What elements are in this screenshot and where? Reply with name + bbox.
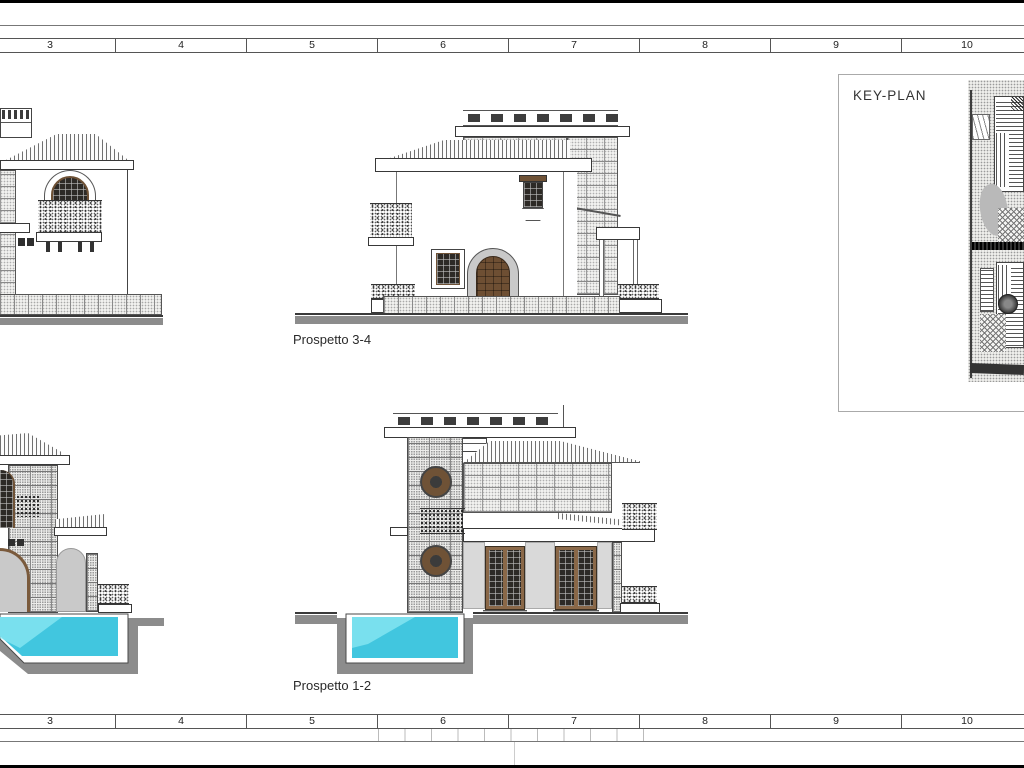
p12-pilaster-a (463, 542, 485, 609)
door-a-leaf-right (507, 550, 521, 606)
keyplan-hedge-band (972, 242, 1024, 250)
p12-left-pool (0, 608, 165, 690)
p34-wing-cornice (596, 227, 640, 240)
p12-main-roof (463, 441, 640, 463)
keyplan-road-band (970, 363, 1024, 375)
p12-label: Prospetto 1-2 (293, 678, 371, 693)
ruler-cell: 9 (770, 38, 902, 53)
p12-french-door-a (485, 546, 525, 610)
p34-left-ground-line (0, 315, 163, 317)
p12-left-ironwork (16, 495, 40, 517)
p34-upper-window (523, 182, 543, 208)
ruler-cell: 5 (246, 714, 378, 729)
ruler-cell: 6 (377, 38, 509, 53)
ruler-bottom: 345678910 (0, 714, 1024, 729)
p34-balcony-bracket-right (78, 242, 96, 252)
p34-left-side-slab (0, 223, 30, 233)
p12-floor1-cornice (463, 528, 655, 542)
ruler-cell: 4 (115, 38, 247, 53)
p34-main-roof (390, 140, 570, 158)
door-b-leaf-left (559, 550, 574, 606)
door-b-leaf-right (578, 550, 593, 606)
p34-balcony-bracket-left (46, 242, 64, 252)
p12-left-arch-window (0, 470, 15, 528)
p34-balcony-railing (38, 200, 102, 234)
ruler-subdivision-ticks (378, 729, 645, 741)
p12-left-eave (390, 527, 408, 536)
p34-left-vent-b (27, 238, 34, 246)
p34-label: Prospetto 3-4 (293, 332, 371, 347)
ruler-cell: 8 (639, 38, 771, 53)
p12-ground-line-right (473, 612, 688, 614)
p12-left-niche (56, 548, 86, 612)
ruler-cell: 7 (508, 38, 640, 53)
ruler-cell: 4 (115, 714, 247, 729)
p34-ground-bar (295, 316, 688, 324)
ruler-cell: 8 (639, 714, 771, 729)
p34-left-quoins (0, 170, 16, 296)
ruler-cell: 9 (770, 714, 902, 729)
ruler-cell: 10 (901, 38, 1024, 53)
p34-merlon-parapet (463, 110, 618, 126)
frame-hline-lower (0, 741, 1024, 742)
p12-left-wing-cornice (54, 527, 107, 536)
p34-left-vent-a (18, 238, 25, 246)
p34-upper-window-lintel (519, 175, 547, 182)
p34-left-roof (2, 134, 132, 162)
ruler-cell: 10 (901, 714, 1024, 729)
ruler-cell: 3 (0, 38, 116, 53)
p34-pilaster-right (563, 172, 577, 297)
p12-left-vent-a (8, 539, 15, 546)
p34-lower-window (436, 253, 460, 285)
p12-floor2-stone (463, 463, 612, 513)
p34-balcony-slab (36, 232, 102, 242)
p12-left-railing (98, 584, 129, 604)
keyplan-terrace-a (998, 208, 1024, 242)
p34-tower-cornice (455, 126, 630, 137)
keyplan-terrace-b (980, 314, 1006, 352)
p12-left-cornice (0, 455, 70, 465)
p12-pilaster-b (525, 542, 555, 609)
keyplan-side-rooms (980, 268, 994, 312)
ruler-cell: 6 (377, 714, 509, 729)
chimney-cap-line (1, 122, 31, 123)
chimney-ornament (2, 110, 30, 119)
p12-upper-right-railing (622, 503, 657, 530)
door-a-leaf-left (489, 550, 503, 606)
p34-left-chimney (0, 108, 32, 138)
keyplan-site-plan (968, 80, 1024, 382)
p12-left-roof (0, 433, 62, 457)
p12-left-pier (86, 553, 98, 612)
p34-left-terrace-slab (368, 237, 414, 246)
p12-porthole-lower (420, 545, 452, 577)
p12-tower-balcony (420, 508, 465, 534)
p34-left-base-course (0, 294, 162, 315)
p12-french-door-b (555, 546, 597, 610)
p34-wing-base (616, 299, 662, 313)
house-a-floor-hatch-1 (996, 133, 1008, 187)
ruler-top: 345678910 (0, 38, 1024, 53)
frame-vline-center (514, 742, 515, 765)
keyplan-title: KEY-PLAN (853, 88, 927, 103)
house-a-shadow-corner (1011, 97, 1023, 111)
ruler-cell: 5 (246, 38, 378, 53)
p34-left-terrace-railing (370, 203, 412, 238)
p12-pilaster-c (597, 542, 612, 609)
p34-wing-railing (618, 284, 659, 299)
p12-left-vent-b (17, 539, 24, 546)
p12-left-wing-roof (55, 514, 105, 527)
keyplan-house-a (994, 96, 1024, 192)
keyplan-tree-circle (998, 294, 1018, 314)
p12-ground-railing (622, 586, 657, 603)
p34-ground-line (295, 313, 688, 315)
ruler-cell: 3 (0, 714, 116, 729)
sheet-border-top (0, 0, 1024, 3)
house-a-floor-hatch-2 (1009, 133, 1023, 187)
drawing-sheet: 345678910 345678910 KEY-PLAN (0, 0, 1024, 768)
p34-main-cornice (375, 158, 592, 172)
p34-left-ground-bar (0, 318, 163, 325)
pool-ledge-gray (128, 618, 164, 626)
keyplan-stairs (972, 114, 990, 140)
p34-wing-post-a (599, 240, 604, 297)
ruler-cell: 7 (508, 714, 640, 729)
p34-left-cornice (0, 160, 134, 170)
frame-hline-upper (0, 25, 1024, 26)
p12-merlon-parapet (393, 413, 558, 428)
p12-ground-bar-right (473, 615, 688, 624)
p12-porthole-upper (420, 466, 452, 498)
